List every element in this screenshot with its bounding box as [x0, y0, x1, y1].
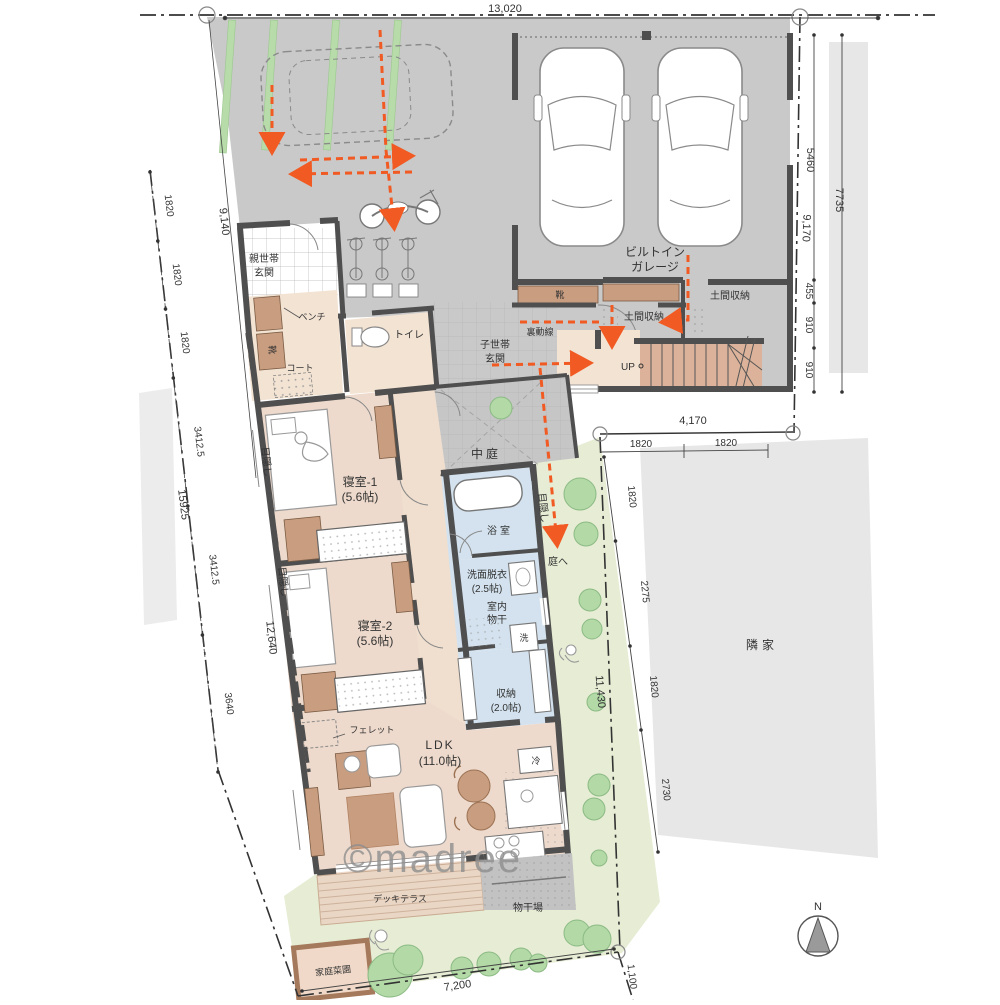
- child-entrance-label-2: 玄関: [485, 352, 505, 365]
- washer-label: 洗: [519, 632, 528, 643]
- dim-5460: 5460: [804, 148, 816, 172]
- washroom-size: (2.5帖): [472, 582, 503, 595]
- dim-15925: 15925: [175, 489, 191, 521]
- kitchen-sink-counter: [504, 775, 563, 828]
- watermark: ©madree: [343, 837, 522, 881]
- dim-e1820a: 1820: [625, 485, 638, 509]
- toilet-floor: [345, 312, 436, 394]
- dim-9140: 9,140: [217, 207, 232, 236]
- indoor-drying-label-2: 物干: [487, 613, 507, 626]
- dim-w34125b: 3412.5: [206, 554, 221, 586]
- stairs: UP: [621, 336, 764, 392]
- coat-label: コート: [286, 363, 313, 373]
- bench: [254, 296, 283, 331]
- indoor-drying-label-1: 室内: [487, 600, 507, 613]
- parent-entrance-label-2: 玄関: [254, 266, 274, 279]
- dim-12640: 12,640: [263, 620, 278, 655]
- dim-w1820b: 1820: [170, 263, 184, 287]
- dim-m1820a: 1820: [630, 439, 653, 450]
- bedroom1-label: 寝室-1: [343, 474, 378, 489]
- dim-w1820c: 1820: [178, 331, 192, 355]
- dim-1100: 1,100: [624, 964, 638, 991]
- fridge-label: 冷: [531, 755, 540, 766]
- courtyard-tree: [490, 397, 512, 419]
- drying-yard-label: 物干場: [513, 901, 543, 914]
- dim-e2730: 2730: [659, 778, 672, 802]
- bedroom2-size: (5.6帖): [357, 633, 394, 648]
- ldk-size: (11.0帖): [419, 753, 461, 768]
- dim-top: 13,020: [488, 3, 522, 15]
- ldk-label: LDK: [425, 738, 454, 752]
- bathroom-label: 浴室: [487, 524, 513, 537]
- car-2: [652, 48, 748, 246]
- car-1: [534, 48, 630, 246]
- doma-storage-label-1: 土間収納: [710, 289, 750, 302]
- dim-w3640: 3640: [222, 692, 236, 716]
- garage-label-2: ガレージ: [631, 260, 679, 274]
- neighbor-house-label: 隣家: [746, 637, 778, 652]
- garage-label-1: ビルトイン: [625, 245, 685, 259]
- dim-7735: 7735: [833, 188, 845, 212]
- parent-entrance-label-1: 親世帯: [249, 252, 279, 265]
- bathtub: [453, 475, 524, 513]
- dim-7200: 7,200: [443, 978, 472, 994]
- dim-9170: 9,170: [800, 214, 813, 242]
- stairs-up-label: UP: [621, 362, 635, 373]
- dim-w1820a: 1820: [162, 194, 176, 218]
- pillow-1: [271, 417, 296, 434]
- shoe-cabinet-child-2: [603, 284, 679, 301]
- storage-size: (2.0帖): [491, 701, 522, 714]
- shoes-label-parent: 靴: [267, 345, 279, 355]
- dim-910b: 910: [803, 362, 814, 379]
- armchair: [365, 743, 401, 778]
- bench-label: ベンチ: [298, 312, 325, 322]
- child-entrance-label-1: 子世帯: [480, 338, 510, 351]
- dim-455: 455: [803, 283, 814, 300]
- shoes-label-child: 靴: [555, 289, 564, 300]
- dim-4170: 4,170: [679, 415, 707, 427]
- bedroom1-size: (5.6帖): [342, 489, 379, 504]
- dim-e1820b: 1820: [647, 675, 660, 699]
- dim-w34125a: 3412.5: [191, 426, 206, 458]
- north-label: N: [814, 901, 822, 913]
- bedroom2-label: 寝室-2: [358, 618, 393, 633]
- courtyard-label: 中庭: [471, 446, 501, 461]
- toilet-label: トイレ: [394, 330, 424, 341]
- floor-plan-page: 隣家 ビルトイン ガレージ: [0, 0, 1000, 1000]
- storage-label: 収納: [496, 687, 516, 700]
- pillow-2: [289, 574, 310, 590]
- person-at-desk: [344, 756, 360, 772]
- to-garden-label: 庭へ: [548, 555, 568, 568]
- courtyard: 中庭: [434, 375, 577, 473]
- dim-e2275: 2275: [638, 580, 651, 604]
- floor-plan-canvas: 隣家 ビルトイン ガレージ: [0, 0, 1000, 1000]
- coat-closet: [273, 372, 313, 397]
- deck-label: デッキテラス: [373, 893, 427, 904]
- doma-storage-label-2: 土間収納: [624, 310, 664, 323]
- back-flow-label: 裏動線: [526, 326, 553, 337]
- dim-m1820b: 1820: [715, 438, 738, 449]
- toilet-fixture: [352, 327, 389, 347]
- vanity-sink: [508, 561, 537, 595]
- washroom-label: 洗面脱衣: [467, 568, 507, 581]
- dim-910a: 910: [803, 317, 814, 334]
- compass: N: [798, 901, 838, 956]
- ferret-label: フェレット: [349, 725, 394, 735]
- desk-2: [301, 671, 339, 712]
